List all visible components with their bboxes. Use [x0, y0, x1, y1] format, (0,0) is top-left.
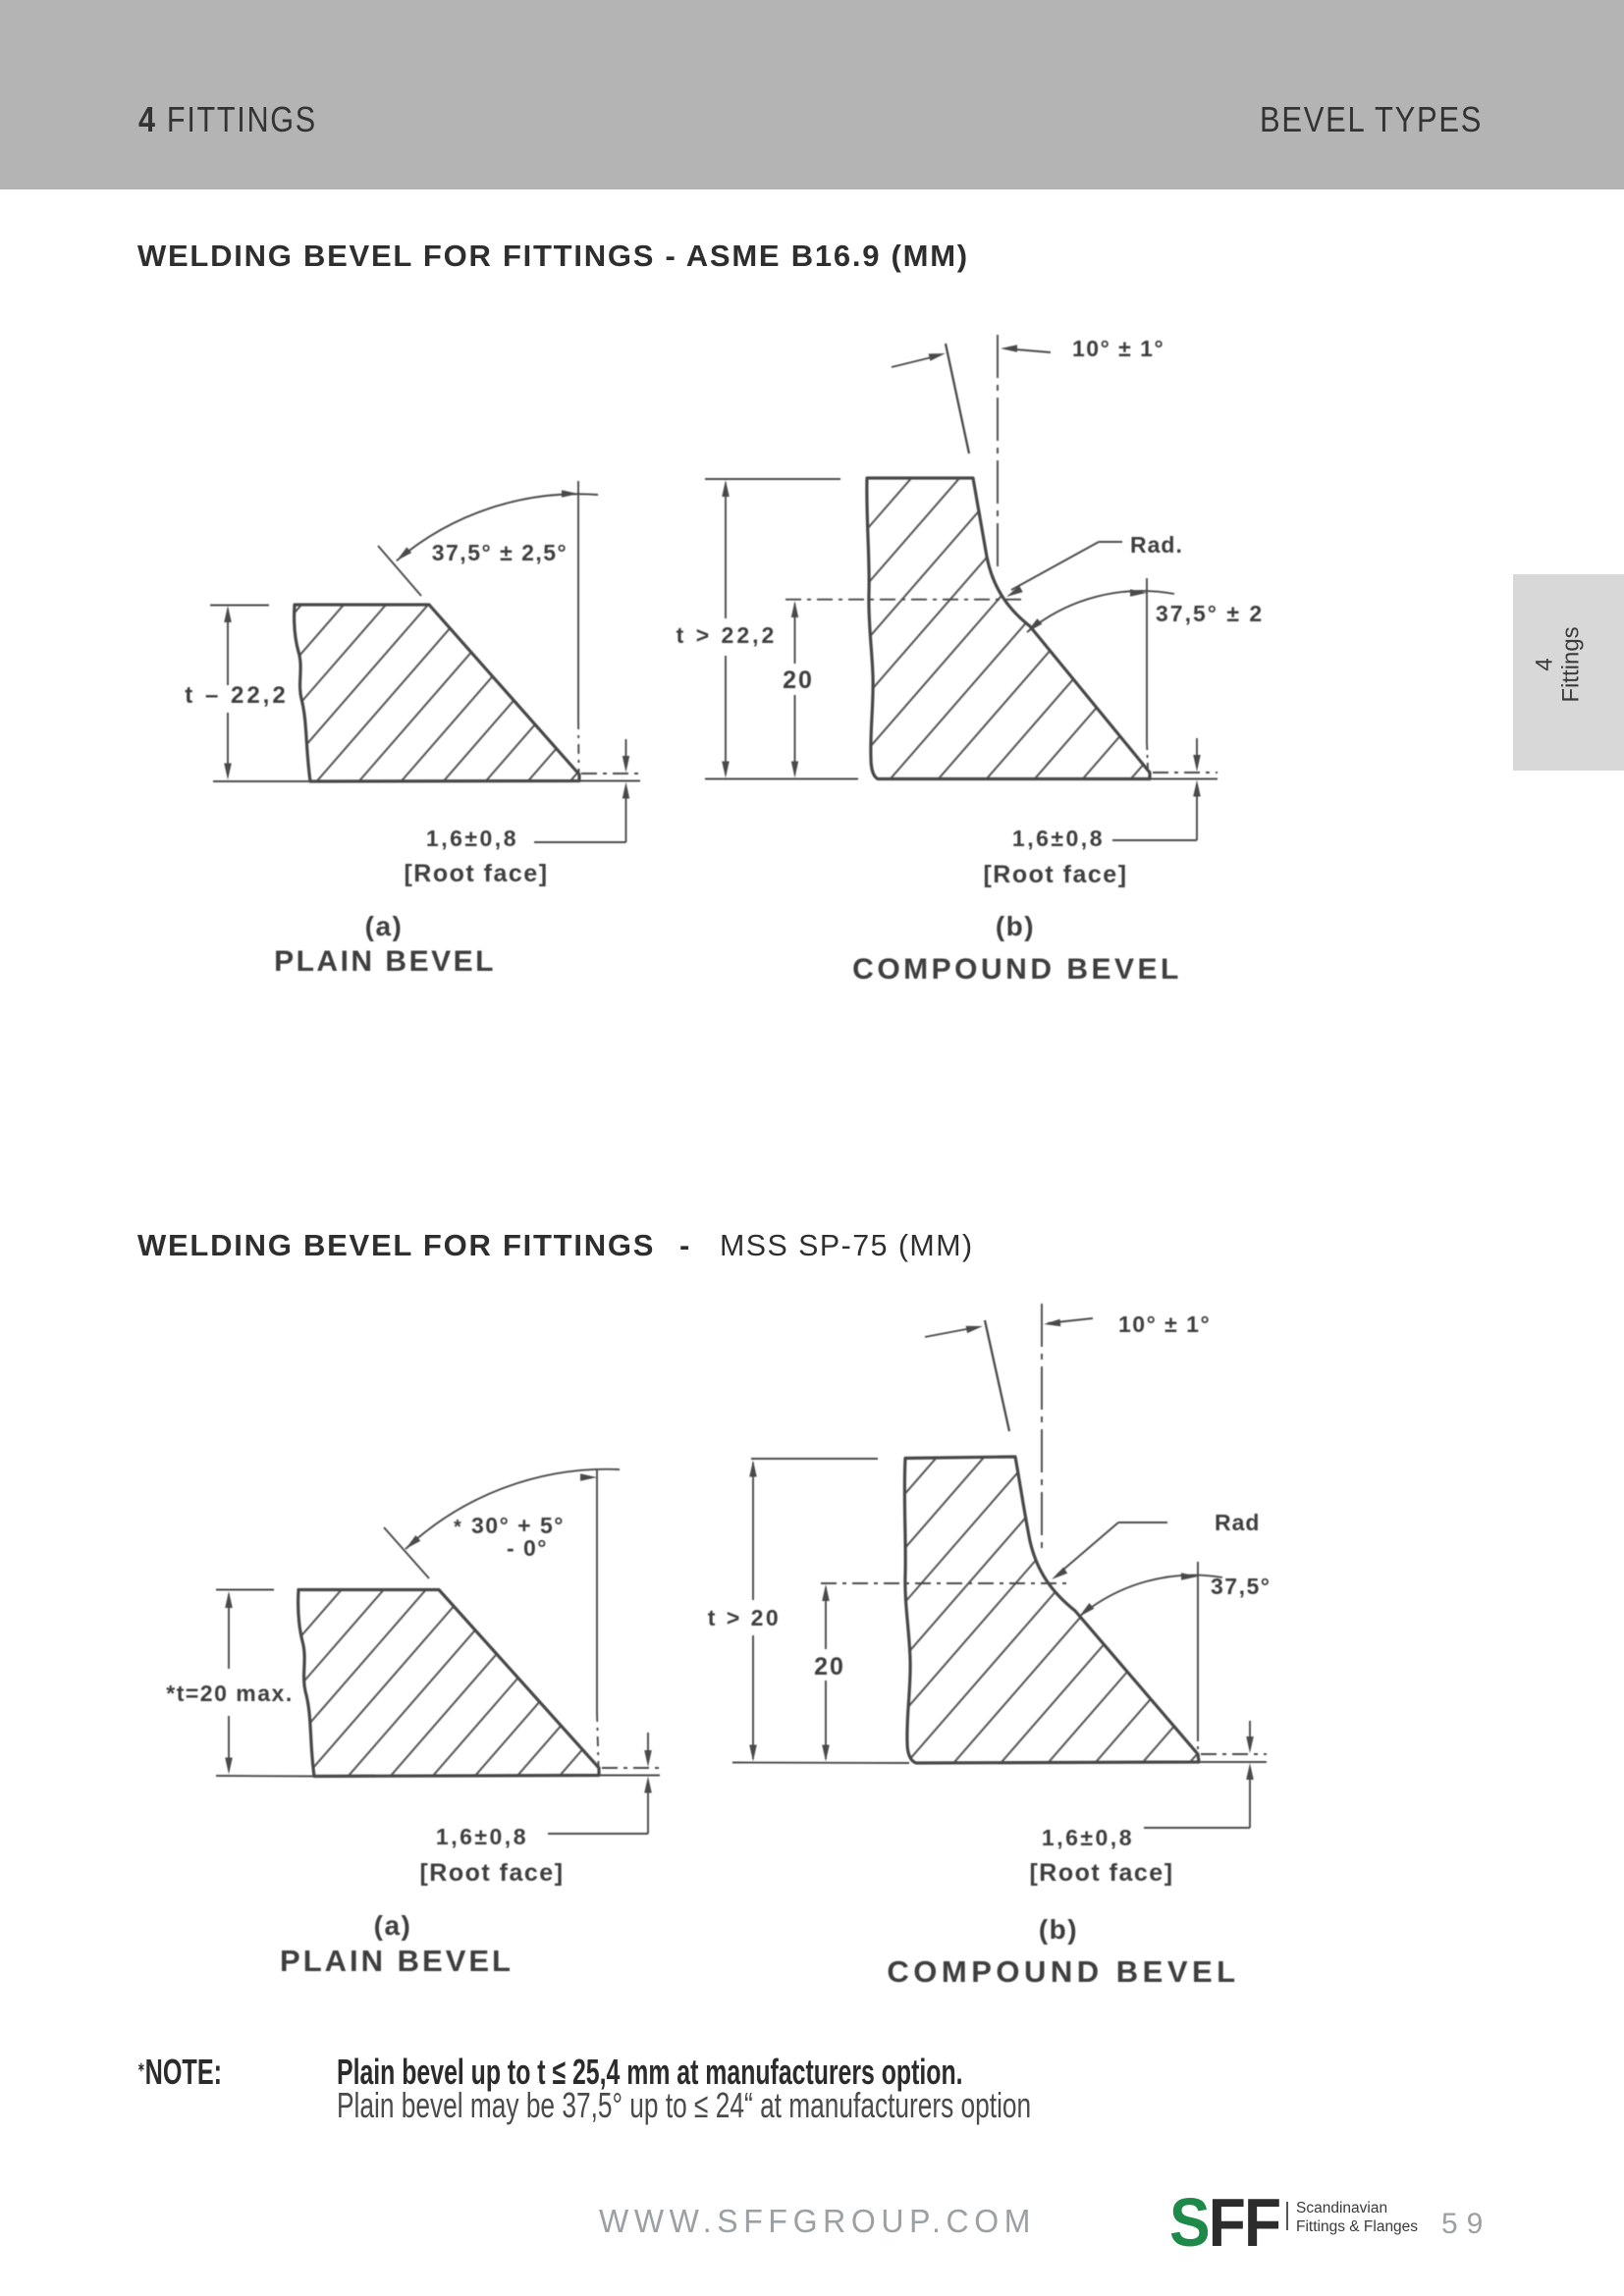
svg-text:[Root face]: [Root face]: [404, 860, 548, 887]
svg-text:1,6±0,8: 1,6±0,8: [426, 826, 518, 851]
svg-text:37,5° ± 2,5°: 37,5° ± 2,5°: [432, 540, 568, 565]
svg-text:[Root face]: [Root face]: [419, 1859, 564, 1887]
svg-text:- 0°: - 0°: [507, 1535, 548, 1561]
svg-text:1,6±0,8: 1,6±0,8: [436, 1824, 528, 1849]
svg-text:37,5°: 37,5°: [1211, 1574, 1271, 1599]
svg-text:(b): (b): [1039, 1914, 1078, 1945]
svg-text:*: *: [454, 1517, 461, 1538]
svg-text:[Root face]: [Root face]: [1029, 1859, 1173, 1887]
svg-text:10° ± 1°: 10° ± 1°: [1072, 336, 1164, 361]
svg-text:t – 22,2: t – 22,2: [185, 682, 288, 709]
svg-text:PLAIN BEVEL: PLAIN BEVEL: [274, 945, 496, 978]
svg-text:Rad: Rad: [1215, 1510, 1260, 1535]
svg-text:t > 22,2: t > 22,2: [677, 622, 778, 648]
svg-text:Rad.: Rad.: [1130, 532, 1183, 558]
svg-text:[Root face]: [Root face]: [983, 861, 1127, 888]
svg-text:1,6±0,8: 1,6±0,8: [1012, 826, 1105, 851]
svg-text:10° ± 1°: 10° ± 1°: [1118, 1311, 1211, 1337]
svg-text:(a): (a): [365, 911, 404, 941]
svg-text:COMPOUND BEVEL: COMPOUND BEVEL: [887, 1954, 1239, 1989]
svg-text:1,6±0,8: 1,6±0,8: [1042, 1825, 1134, 1850]
svg-text:(a): (a): [374, 1910, 412, 1941]
svg-text:*t=20 max.: *t=20 max.: [166, 1681, 293, 1706]
svg-text:37,5° ± 2: 37,5° ± 2: [1156, 601, 1264, 626]
svg-text:20: 20: [783, 667, 814, 694]
svg-text:20: 20: [814, 1653, 845, 1681]
svg-text:COMPOUND BEVEL: COMPOUND BEVEL: [852, 953, 1182, 986]
svg-text:t > 20: t > 20: [708, 1605, 781, 1630]
svg-text:PLAIN BEVEL: PLAIN BEVEL: [280, 1944, 514, 1978]
svg-text:(b): (b): [996, 911, 1035, 941]
